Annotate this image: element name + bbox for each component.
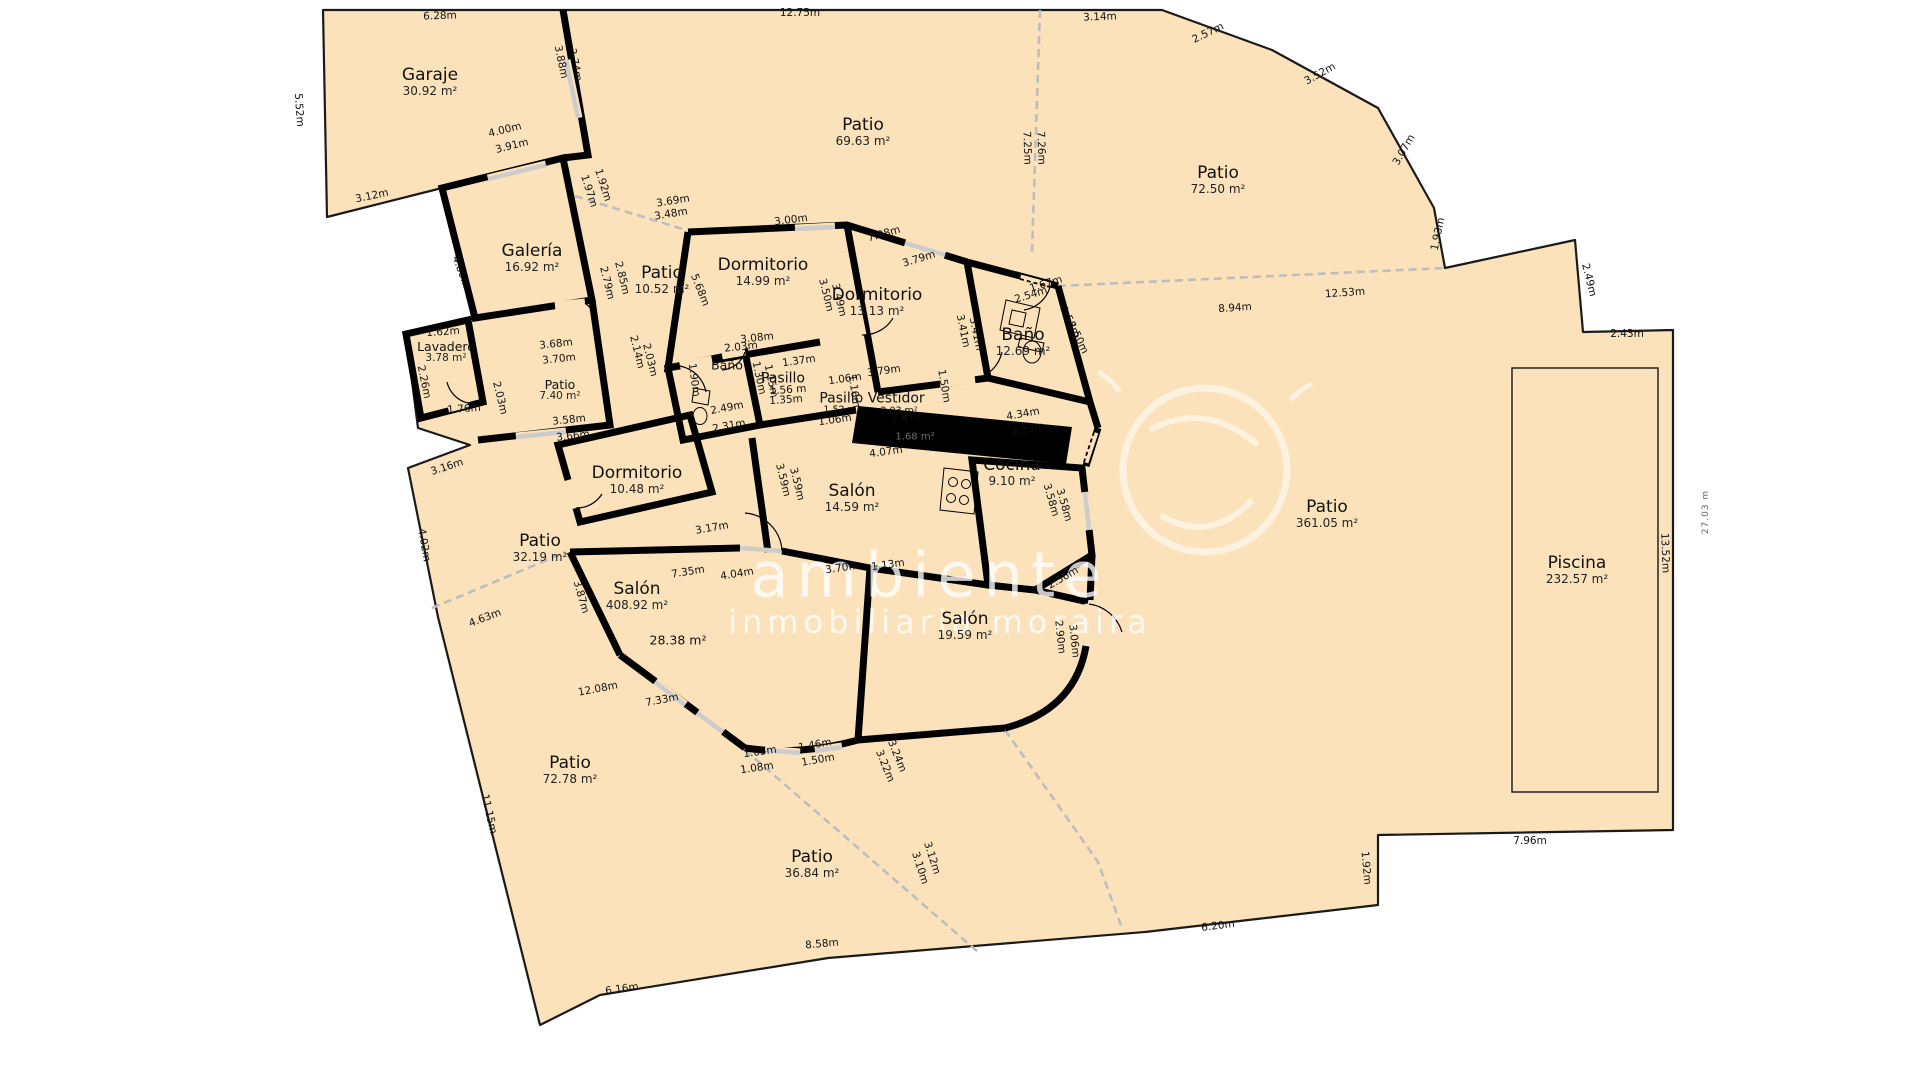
parcel-outline [323,10,1673,1025]
floor-plan-page: ambiente inmobiliaria moraira 27.03 m Ga… [0,0,1920,1080]
watermark-line1: ambiente [751,539,1110,612]
window [765,750,800,753]
window [795,227,835,229]
scale-ruler-text: 27.03 m [1701,490,1711,534]
watermark-line2: inmobiliaria moraira [728,603,1152,641]
